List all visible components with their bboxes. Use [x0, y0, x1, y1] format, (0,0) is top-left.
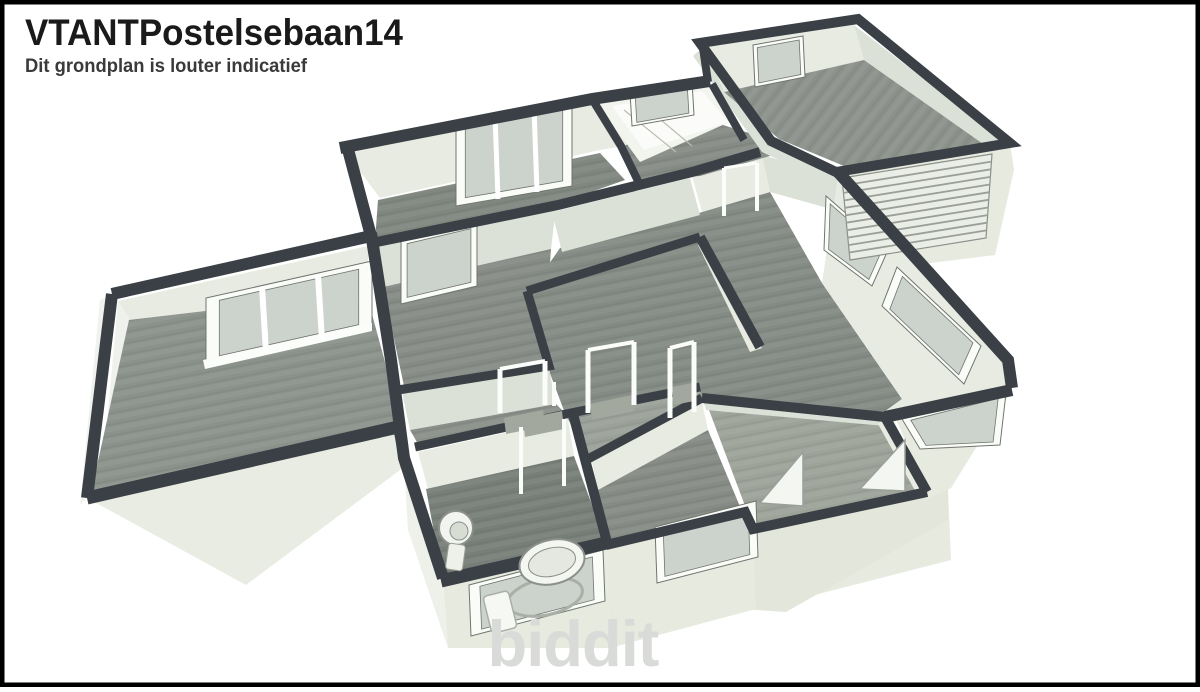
svg-text:biddit: biddit — [488, 607, 659, 680]
svg-text:VTANTPostelsebaan14: VTANTPostelsebaan14 — [25, 11, 403, 53]
svg-text:Dit grondplan is louter indica: Dit grondplan is louter indicatief — [25, 55, 307, 77]
